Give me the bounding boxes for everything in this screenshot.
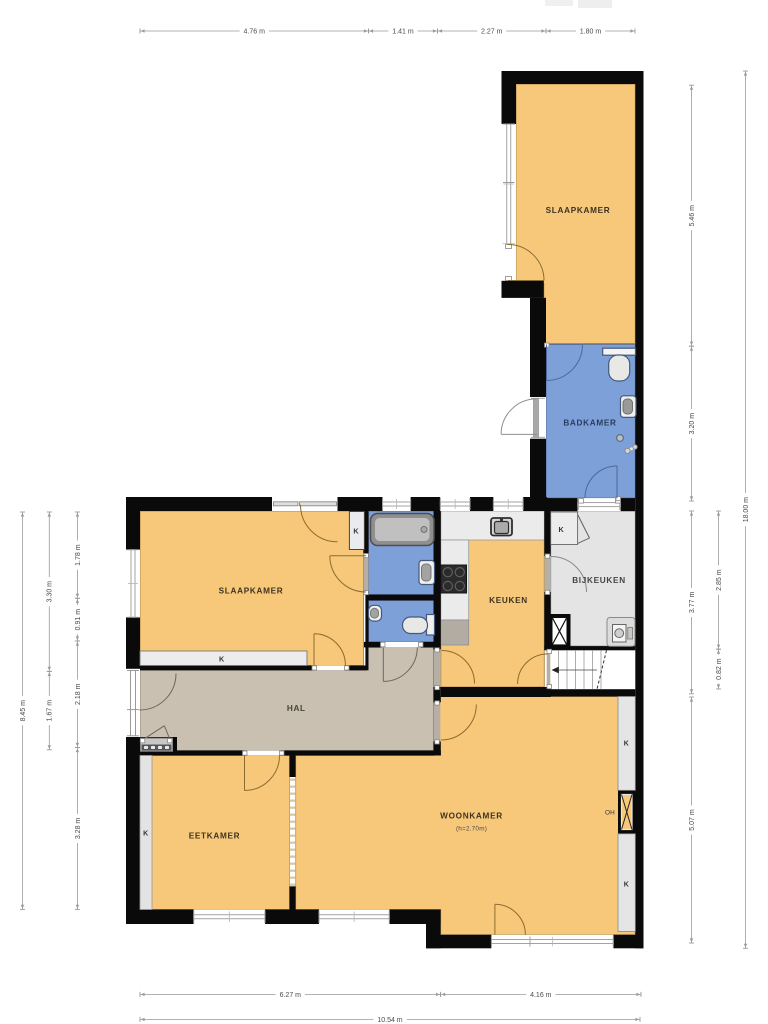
svg-text:BIJKEUKEN: BIJKEUKEN xyxy=(572,576,626,585)
svg-text:K: K xyxy=(559,525,565,534)
svg-text:6.27 m: 6.27 m xyxy=(280,992,302,999)
svg-text:EETKAMER: EETKAMER xyxy=(189,832,241,841)
svg-text:K: K xyxy=(624,882,630,889)
svg-text:4.16 m: 4.16 m xyxy=(530,992,552,999)
svg-text:3.30 m: 3.30 m xyxy=(47,581,54,603)
svg-text:K: K xyxy=(353,527,359,536)
svg-text:K: K xyxy=(624,741,630,748)
svg-text:5.46 m: 5.46 m xyxy=(689,205,696,227)
svg-text:BADKAMER: BADKAMER xyxy=(563,419,616,428)
svg-text:1.80 m: 1.80 m xyxy=(580,28,602,35)
svg-text:HAL: HAL xyxy=(287,704,306,713)
svg-text:OH: OH xyxy=(605,810,615,817)
svg-text:WOONKAMER: WOONKAMER xyxy=(440,812,503,821)
svg-text:SLAAPKAMER: SLAAPKAMER xyxy=(219,587,284,596)
svg-text:8.45 m: 8.45 m xyxy=(20,700,27,722)
svg-text:1.67 m: 1.67 m xyxy=(47,700,54,722)
svg-text:SLAAPKAMER: SLAAPKAMER xyxy=(546,206,611,215)
svg-text:(h=2.70m): (h=2.70m) xyxy=(456,826,487,833)
svg-text:3.28 m: 3.28 m xyxy=(75,818,82,840)
svg-text:0.82 m: 0.82 m xyxy=(716,658,723,680)
svg-text:3.77 m: 3.77 m xyxy=(689,592,696,614)
svg-text:2.18 m: 2.18 m xyxy=(75,683,82,705)
svg-text:4.76 m: 4.76 m xyxy=(244,28,266,35)
svg-text:K: K xyxy=(143,831,149,838)
svg-text:KEUKEN: KEUKEN xyxy=(489,596,528,605)
svg-text:2.27 m: 2.27 m xyxy=(481,28,503,35)
svg-text:1.78 m: 1.78 m xyxy=(75,544,82,566)
svg-text:2.85 m: 2.85 m xyxy=(716,569,723,591)
svg-text:10.54 m: 10.54 m xyxy=(377,1017,402,1024)
svg-text:3.20 m: 3.20 m xyxy=(689,413,696,435)
svg-text:1.41 m: 1.41 m xyxy=(392,28,414,35)
svg-text:18.00 m: 18.00 m xyxy=(743,497,750,522)
svg-text:K: K xyxy=(219,655,225,664)
svg-text:5.07 m: 5.07 m xyxy=(689,809,696,831)
svg-text:0.91 m: 0.91 m xyxy=(75,609,82,631)
